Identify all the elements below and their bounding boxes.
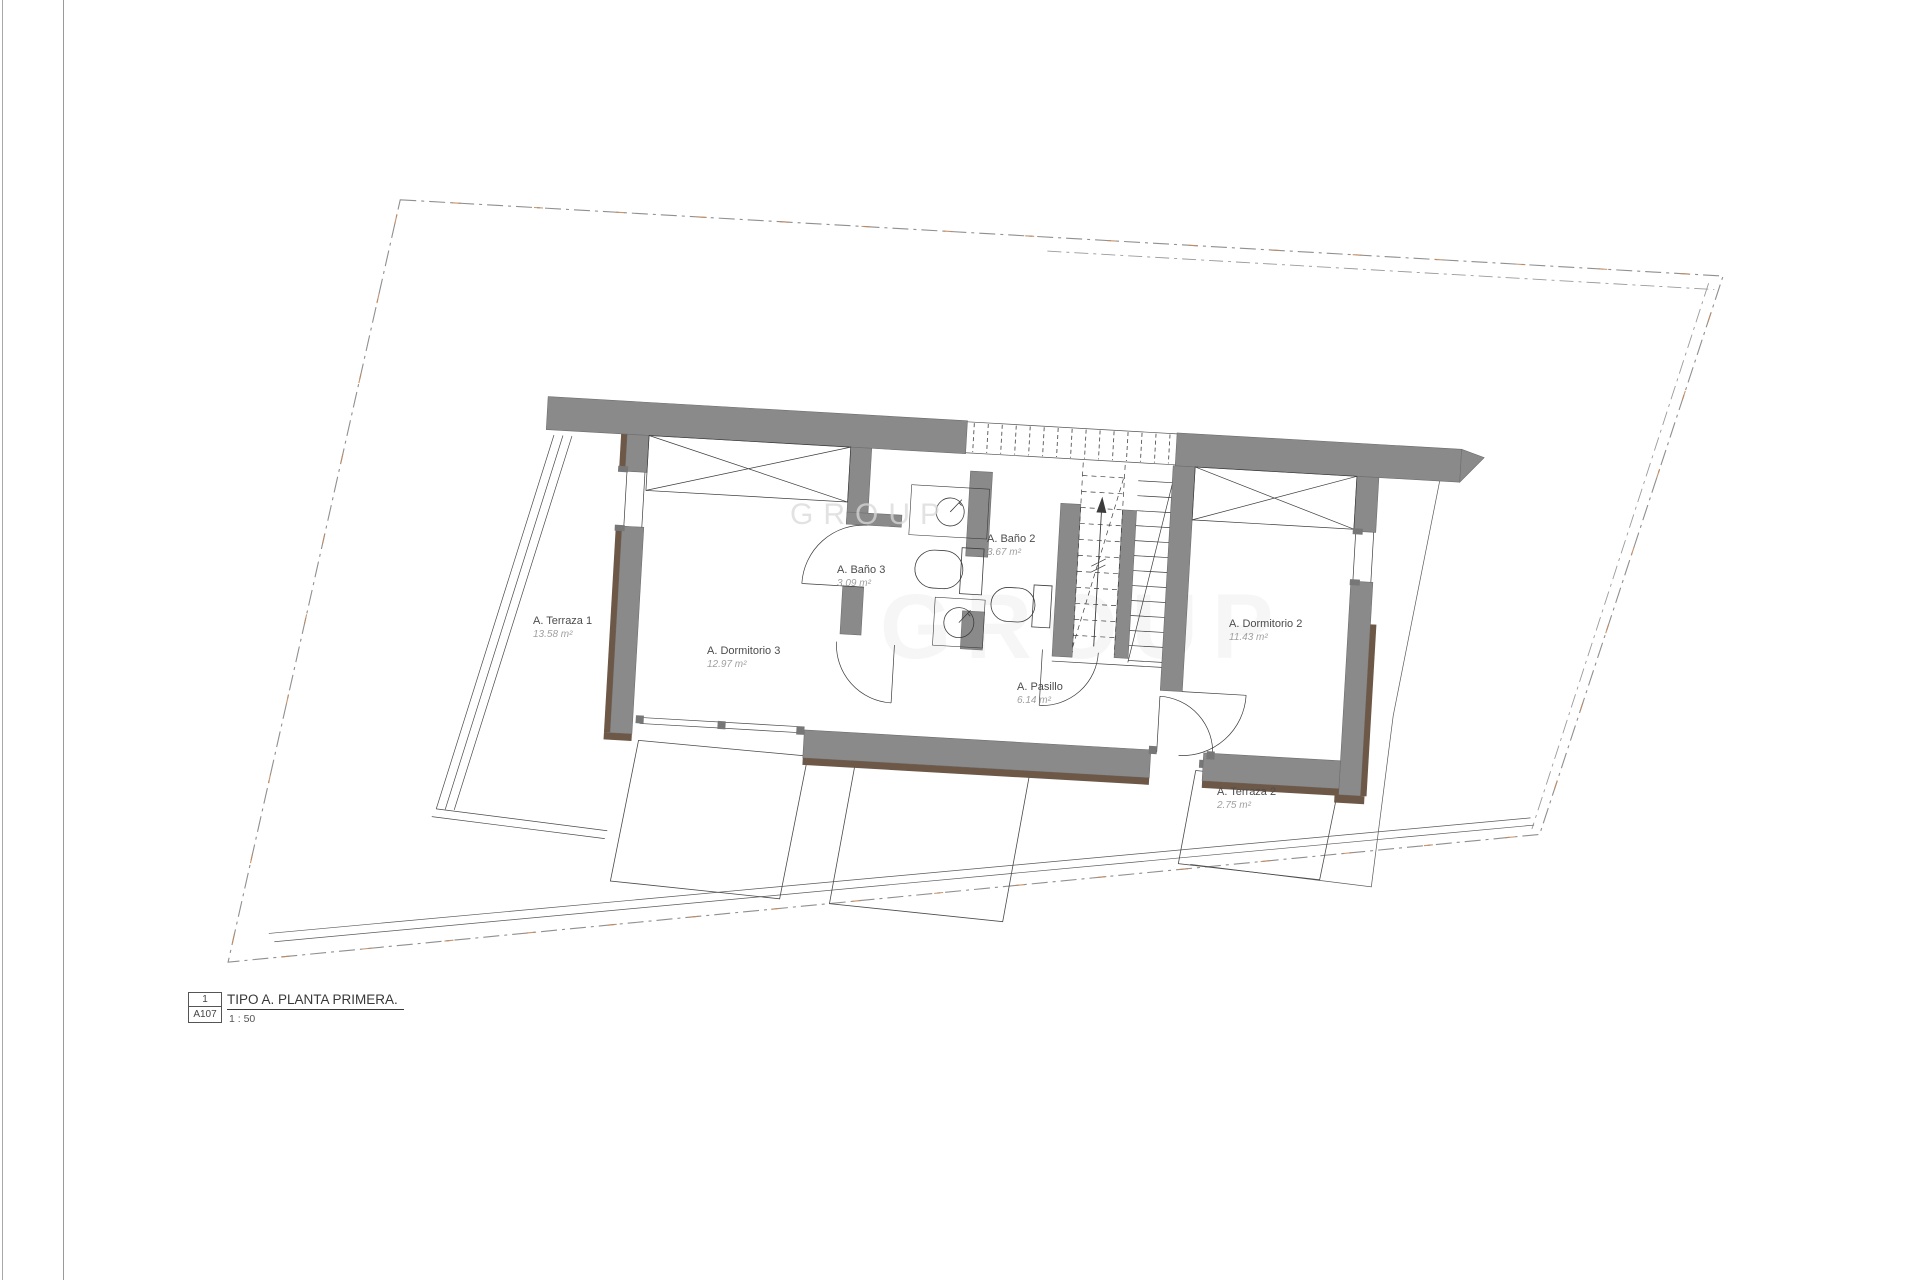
building-walls (528, 397, 1485, 802)
drawing-sheet: GROUP GROUP (0, 0, 1920, 1280)
watermark-text-small: GROUP (790, 498, 950, 532)
title-block: 1 A107 TIPO A. PLANTA PRIMERA. 1 : 50 (188, 992, 404, 1025)
floor-plan-drawing (0, 0, 1920, 1280)
stair-hatch (966, 422, 1177, 465)
detail-reference-box: 1 A107 (188, 992, 222, 1023)
drawing-scale: 1 : 50 (229, 1013, 404, 1025)
railing-dormitorio3 (635, 715, 804, 735)
toilet-icon (914, 549, 964, 590)
terrace1-parapet (431, 429, 630, 838)
drawing-title: TIPO A. PLANTA PRIMERA. (227, 992, 404, 1010)
detail-number: 1 (189, 993, 221, 1007)
sheet-reference: A107 (189, 1007, 221, 1022)
toilet-icon (990, 586, 1036, 622)
